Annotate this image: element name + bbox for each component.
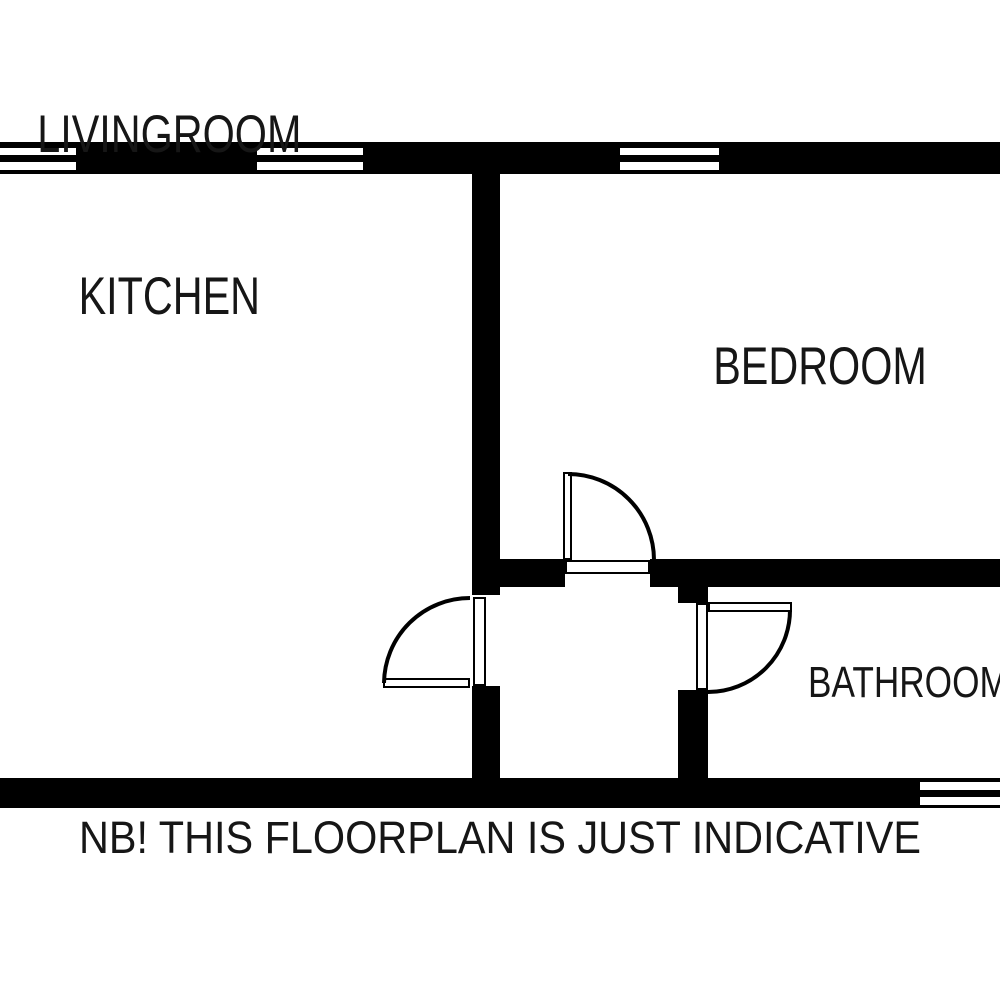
wall-segment (678, 690, 708, 778)
door-swing-arc (708, 610, 790, 692)
window-mid-rail (620, 155, 719, 162)
window (918, 780, 1000, 807)
door-frame (473, 597, 486, 686)
door-frame (696, 603, 708, 690)
room-label-bedroom: BEDROOM (703, 340, 937, 393)
wall-segment (500, 559, 565, 587)
door-frame (565, 560, 650, 574)
wall-segment (472, 686, 500, 778)
room-label-line: KITCHEN (37, 270, 301, 324)
window (618, 146, 721, 172)
disclaimer-text: NB! THIS FLOORPLAN IS JUST INDICATIVE (40, 815, 960, 860)
wall-segment (678, 587, 708, 603)
room-label-line: LIVINGROOM (37, 108, 301, 162)
window-mid-rail (920, 790, 1000, 797)
door-leaf (383, 678, 470, 688)
wall-segment (650, 559, 1000, 587)
door-swing-arc (384, 598, 470, 683)
door-leaf (563, 472, 572, 560)
door-leaf (708, 602, 792, 612)
room-label-livingroom-kitchen: LIVINGROOM KITCHEN (37, 0, 301, 432)
wall-segment (472, 174, 500, 595)
door-swing-arc (568, 474, 654, 560)
room-label-bathroom: BATHROOM (808, 661, 1000, 705)
wall-segment (0, 778, 1000, 808)
floorplan: LIVINGROOM KITCHEN BEDROOM BATHROOM NB! … (0, 0, 1000, 1000)
